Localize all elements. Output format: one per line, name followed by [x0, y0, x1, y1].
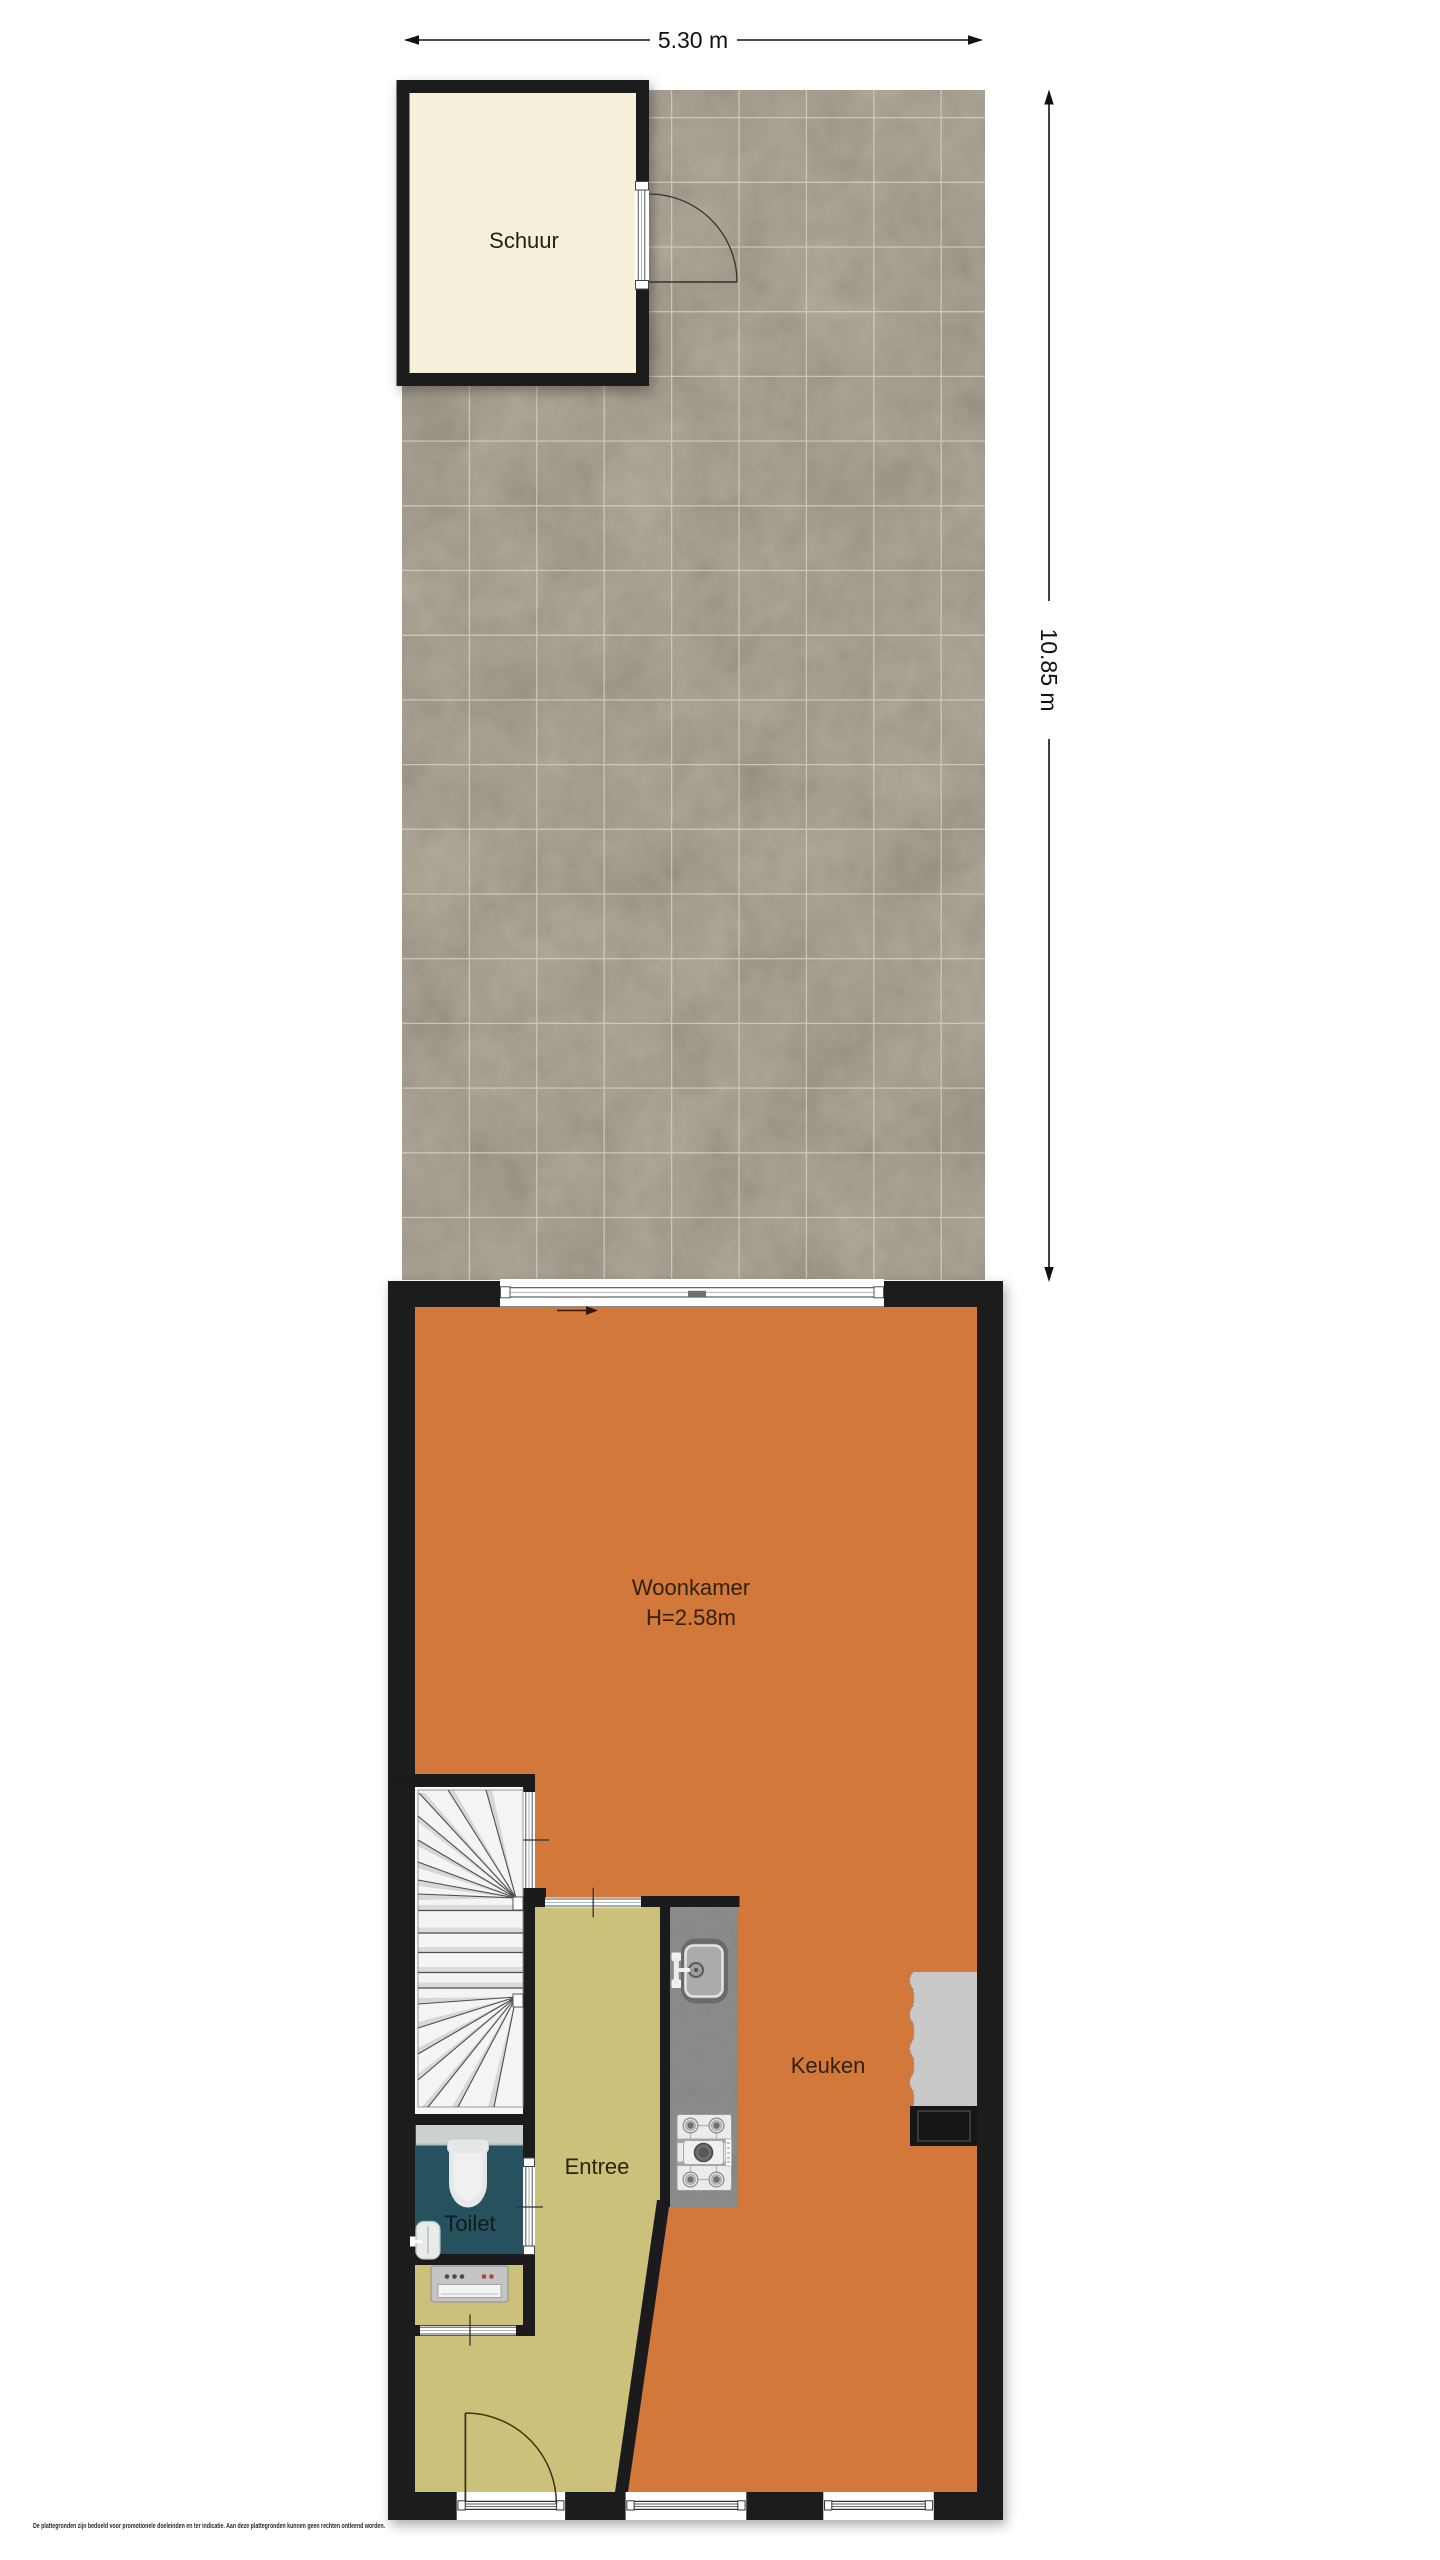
svg-text:Keuken: Keuken	[791, 2053, 866, 2078]
svg-text:Entree: Entree	[565, 2154, 630, 2179]
svg-text:De plattegronden zijn bedoeld: De plattegronden zijn bedoeld voor promo…	[33, 2523, 385, 2530]
svg-text:Woonkamer: Woonkamer	[632, 1575, 750, 1600]
svg-text:5.30 m: 5.30 m	[658, 27, 728, 53]
svg-text:H=2.58m: H=2.58m	[646, 1605, 736, 1630]
svg-text:10.85 m: 10.85 m	[1036, 628, 1062, 711]
svg-text:Schuur: Schuur	[489, 228, 559, 253]
svg-text:Toilet: Toilet	[444, 2211, 495, 2236]
